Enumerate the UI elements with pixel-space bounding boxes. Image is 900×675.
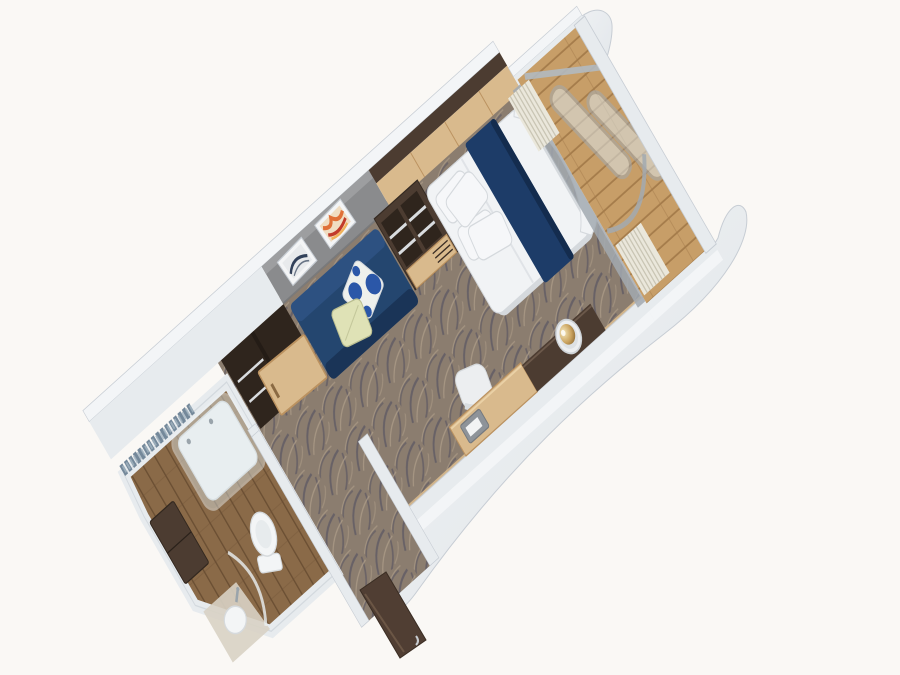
stateroom-render-stage [0,0,900,675]
cabin-3d-floorplan [0,0,900,675]
